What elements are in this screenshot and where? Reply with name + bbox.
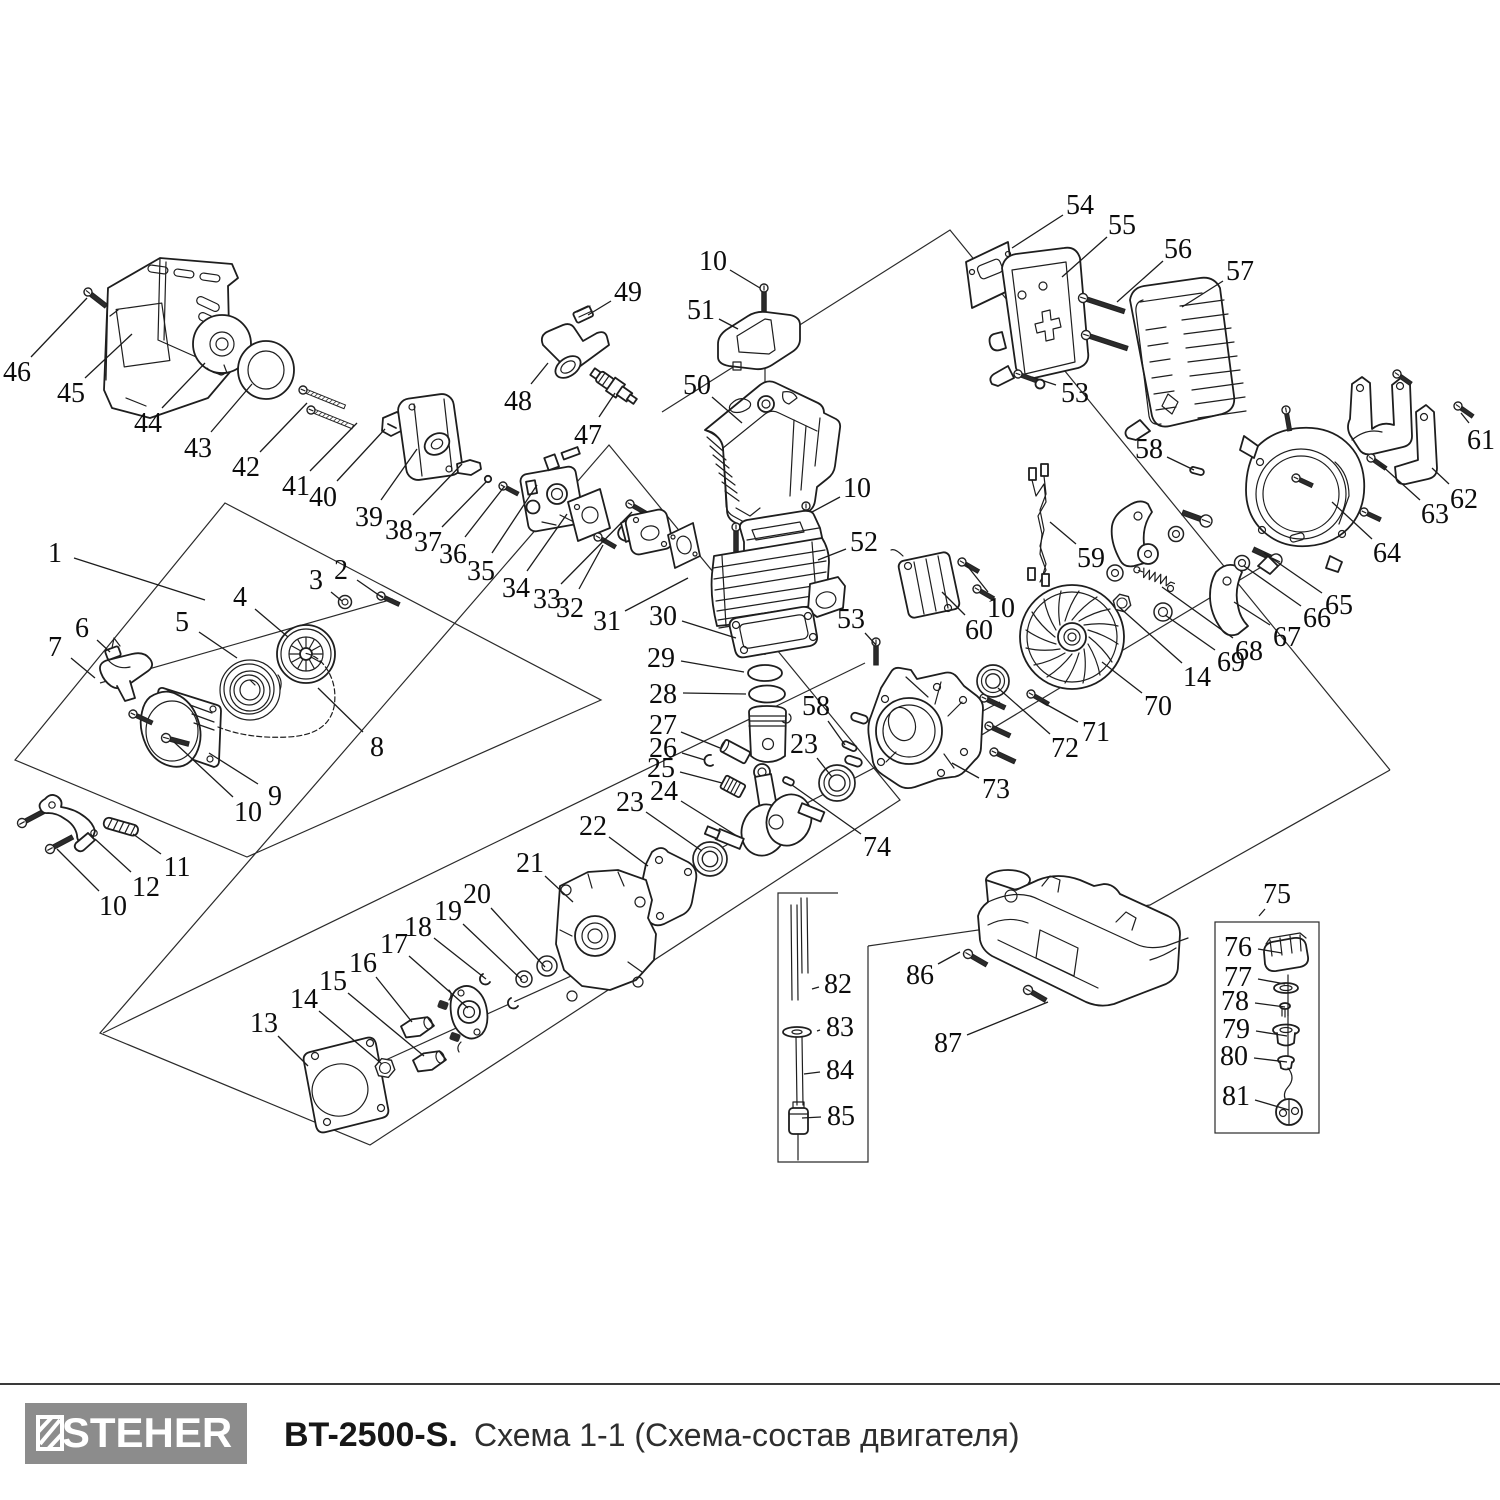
svg-text:10: 10 <box>234 797 262 828</box>
svg-text:Схема 1-1 (Схема-состав двигат: Схема 1-1 (Схема-состав двигателя) <box>474 1417 1019 1453</box>
svg-text:54: 54 <box>1066 190 1094 221</box>
svg-text:11: 11 <box>164 852 191 883</box>
svg-text:36: 36 <box>439 539 467 570</box>
svg-text:40: 40 <box>309 482 337 513</box>
svg-text:23: 23 <box>616 787 644 818</box>
svg-text:63: 63 <box>1421 499 1449 530</box>
svg-text:33: 33 <box>533 584 561 615</box>
svg-text:67: 67 <box>1273 622 1301 653</box>
svg-text:15: 15 <box>319 966 347 997</box>
svg-text:57: 57 <box>1226 256 1254 287</box>
svg-text:74: 74 <box>863 832 891 863</box>
svg-text:14: 14 <box>1183 662 1211 693</box>
svg-text:20: 20 <box>463 879 491 910</box>
svg-text:6: 6 <box>75 613 89 644</box>
svg-text:5: 5 <box>175 607 189 638</box>
svg-text:38: 38 <box>385 515 413 546</box>
svg-text:78: 78 <box>1221 986 1249 1017</box>
svg-text:35: 35 <box>467 556 495 587</box>
svg-text:10: 10 <box>987 593 1015 624</box>
svg-text:BT-2500-S.: BT-2500-S. <box>284 1416 458 1454</box>
svg-text:72: 72 <box>1051 733 1079 764</box>
svg-text:46: 46 <box>3 357 31 388</box>
svg-text:85: 85 <box>827 1101 855 1132</box>
svg-text:8: 8 <box>370 732 384 763</box>
svg-text:10: 10 <box>699 246 727 277</box>
svg-text:76: 76 <box>1224 932 1252 963</box>
svg-text:71: 71 <box>1082 717 1110 748</box>
svg-text:59: 59 <box>1077 543 1105 574</box>
svg-text:22: 22 <box>579 811 607 842</box>
svg-text:44: 44 <box>134 408 162 439</box>
svg-text:13: 13 <box>250 1008 278 1039</box>
svg-text:18: 18 <box>404 912 432 943</box>
svg-text:81: 81 <box>1222 1081 1250 1112</box>
svg-text:29: 29 <box>647 643 675 674</box>
svg-text:41: 41 <box>282 471 310 502</box>
svg-text:4: 4 <box>233 582 247 613</box>
svg-text:50: 50 <box>683 370 711 401</box>
svg-text:65: 65 <box>1325 590 1353 621</box>
svg-text:86: 86 <box>906 960 934 991</box>
svg-text:53: 53 <box>837 604 865 635</box>
svg-text:58: 58 <box>1135 434 1163 465</box>
svg-text:43: 43 <box>184 433 212 464</box>
svg-text:55: 55 <box>1108 210 1136 241</box>
svg-text:2: 2 <box>334 555 348 586</box>
svg-text:47: 47 <box>574 420 602 451</box>
svg-text:52: 52 <box>850 527 878 558</box>
svg-text:45: 45 <box>57 378 85 409</box>
svg-text:68: 68 <box>1235 636 1263 667</box>
svg-text:31: 31 <box>593 606 621 637</box>
svg-text:83: 83 <box>826 1012 854 1043</box>
svg-text:14: 14 <box>290 984 318 1015</box>
svg-text:28: 28 <box>649 679 677 710</box>
svg-text:64: 64 <box>1373 538 1401 569</box>
svg-text:39: 39 <box>355 502 383 533</box>
svg-text:56: 56 <box>1164 234 1192 265</box>
svg-text:37: 37 <box>414 527 442 558</box>
svg-text:27: 27 <box>649 710 677 741</box>
svg-text:30: 30 <box>649 601 677 632</box>
svg-text:3: 3 <box>309 565 323 596</box>
svg-text:73: 73 <box>982 774 1010 805</box>
svg-text:70: 70 <box>1144 691 1172 722</box>
svg-text:STEHER: STEHER <box>62 1409 232 1456</box>
svg-text:61: 61 <box>1467 425 1495 456</box>
svg-text:19: 19 <box>434 896 462 927</box>
svg-text:87: 87 <box>934 1028 962 1059</box>
svg-text:53: 53 <box>1061 378 1089 409</box>
svg-text:82: 82 <box>824 969 852 1000</box>
svg-text:9: 9 <box>268 781 282 812</box>
svg-text:51: 51 <box>687 295 715 326</box>
svg-text:62: 62 <box>1450 484 1478 515</box>
svg-text:75: 75 <box>1263 879 1291 910</box>
svg-text:21: 21 <box>516 848 544 879</box>
svg-text:58: 58 <box>802 691 830 722</box>
svg-text:23: 23 <box>790 729 818 760</box>
svg-text:7: 7 <box>48 632 62 663</box>
svg-text:80: 80 <box>1220 1041 1248 1072</box>
svg-text:10: 10 <box>843 473 871 504</box>
svg-text:48: 48 <box>504 386 532 417</box>
svg-text:1: 1 <box>48 538 62 569</box>
svg-text:84: 84 <box>826 1055 854 1086</box>
svg-text:16: 16 <box>349 948 377 979</box>
svg-text:34: 34 <box>502 573 530 604</box>
svg-text:42: 42 <box>232 452 260 483</box>
svg-text:12: 12 <box>132 872 160 903</box>
svg-text:10: 10 <box>99 891 127 922</box>
svg-text:49: 49 <box>614 277 642 308</box>
